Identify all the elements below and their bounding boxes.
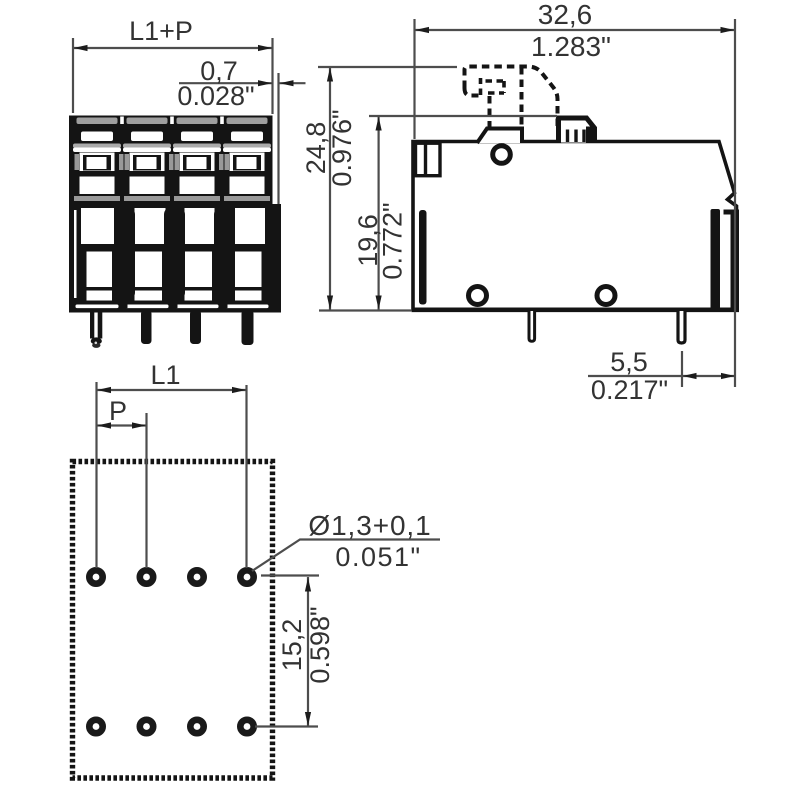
svg-text:32,6: 32,6	[538, 0, 593, 30]
svg-text:0.598": 0.598"	[305, 606, 335, 683]
svg-text:0.028": 0.028"	[177, 81, 254, 111]
svg-text:0.976": 0.976"	[327, 109, 357, 186]
svg-text:Ø1,3+0,1: Ø1,3+0,1	[308, 510, 431, 541]
svg-text:0.772": 0.772"	[378, 202, 408, 279]
svg-text:0.217": 0.217"	[591, 375, 668, 405]
svg-text:0.051": 0.051"	[335, 542, 421, 572]
svg-text:1.283": 1.283"	[531, 31, 611, 62]
svg-text:15,2: 15,2	[277, 619, 307, 672]
svg-text:P: P	[109, 396, 127, 426]
svg-text:L1: L1	[150, 360, 180, 390]
svg-text:L1+P: L1+P	[129, 16, 193, 46]
svg-text:5,5: 5,5	[610, 347, 648, 377]
